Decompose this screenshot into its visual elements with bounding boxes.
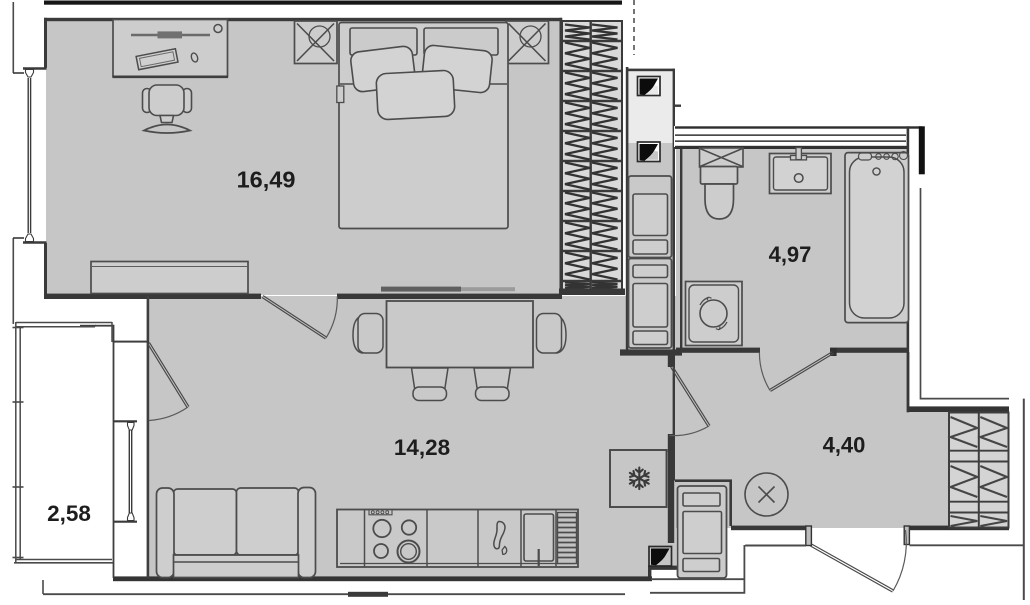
svg-text:4,40: 4,40: [823, 433, 866, 458]
svg-text:4,97: 4,97: [769, 242, 812, 267]
svg-text:2,58: 2,58: [47, 501, 91, 526]
svg-text:14,28: 14,28: [394, 435, 450, 460]
svg-text:16,49: 16,49: [237, 167, 296, 193]
